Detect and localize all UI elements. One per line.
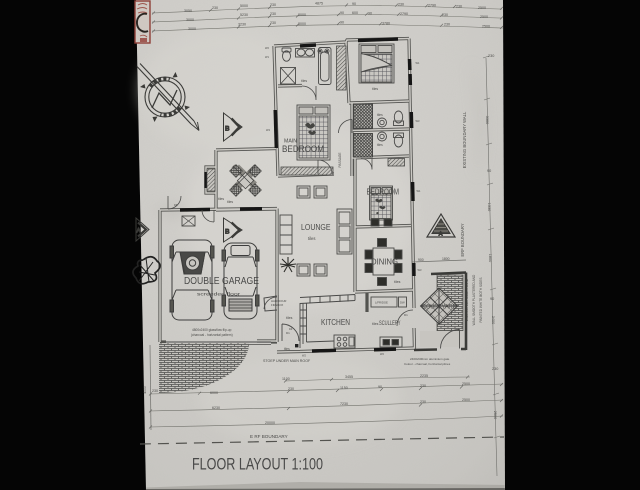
svg-text:90: 90 bbox=[340, 11, 344, 15]
svg-text:230: 230 bbox=[152, 389, 158, 393]
svg-text:FLOOR LAYOUT 1:100: FLOOR LAYOUT 1:100 bbox=[192, 456, 323, 474]
svg-text:20000: 20000 bbox=[265, 421, 275, 425]
svg-text:W3: W3 bbox=[416, 119, 420, 123]
svg-text:3230: 3230 bbox=[238, 23, 246, 27]
svg-text:90: 90 bbox=[487, 169, 491, 173]
svg-text:tiles: tiles bbox=[286, 316, 293, 320]
svg-text:tiles: tiles bbox=[372, 87, 378, 91]
svg-text:2500: 2500 bbox=[493, 411, 497, 419]
svg-text:D6: D6 bbox=[174, 203, 178, 207]
svg-text:COURTYARD: COURTYARD bbox=[422, 304, 457, 311]
svg-text:tiles: tiles bbox=[227, 200, 233, 204]
svg-text:3780: 3780 bbox=[382, 22, 390, 26]
svg-text:230: 230 bbox=[420, 400, 426, 404]
svg-text:230: 230 bbox=[270, 21, 276, 25]
svg-text:D1: D1 bbox=[404, 313, 408, 317]
svg-text:230: 230 bbox=[288, 387, 294, 391]
svg-text:tiles: tiles bbox=[377, 113, 383, 117]
svg-text:2500: 2500 bbox=[462, 398, 470, 402]
svg-text:2400x600mm aluminium gate: 2400x600mm aluminium gate bbox=[410, 357, 450, 361]
svg-text:D1: D1 bbox=[286, 331, 290, 335]
svg-text:230: 230 bbox=[270, 3, 276, 7]
svg-text:1330: 1330 bbox=[487, 203, 491, 211]
svg-text:2500: 2500 bbox=[462, 382, 470, 386]
svg-text:900: 900 bbox=[418, 258, 424, 262]
svg-text:PAINTED WHITE BOTH SIDES: PAINTED WHITE BOTH SIDES bbox=[479, 278, 483, 323]
svg-text:3000: 3000 bbox=[188, 27, 196, 31]
svg-text:600: 600 bbox=[352, 11, 358, 15]
svg-text:KITCHEN: KITCHEN bbox=[321, 318, 350, 327]
svg-text:B: B bbox=[225, 126, 230, 133]
svg-text:1800: 1800 bbox=[442, 257, 450, 261]
svg-text:W4: W4 bbox=[266, 128, 270, 132]
svg-text:DOUBLE GARAGE: DOUBLE GARAGE bbox=[184, 275, 259, 287]
svg-text:3000: 3000 bbox=[298, 22, 306, 26]
svg-text:tiles: tiles bbox=[218, 197, 224, 201]
svg-text:6230: 6230 bbox=[212, 406, 220, 410]
svg-text:2500: 2500 bbox=[480, 15, 488, 19]
svg-text:FIREBOX: FIREBOX bbox=[271, 303, 283, 307]
svg-text:1800: 1800 bbox=[488, 254, 492, 262]
svg-text:A: A bbox=[137, 229, 141, 235]
svg-text:90: 90 bbox=[340, 21, 344, 25]
svg-text:W3: W3 bbox=[418, 268, 422, 272]
svg-text:230: 230 bbox=[420, 384, 426, 388]
svg-text:230: 230 bbox=[492, 367, 498, 371]
svg-text:230: 230 bbox=[398, 3, 404, 7]
svg-text:W2: W2 bbox=[265, 46, 269, 50]
svg-text:tiles: tiles bbox=[284, 347, 290, 351]
svg-text:W2: W2 bbox=[302, 354, 306, 358]
svg-text:DW: DW bbox=[400, 301, 405, 305]
svg-text:230: 230 bbox=[456, 5, 462, 9]
svg-text:2500: 2500 bbox=[482, 25, 490, 29]
svg-text:EXISTING BOUNDARY WALL: EXISTING BOUNDARY WALL bbox=[462, 111, 467, 168]
svg-text:5000: 5000 bbox=[240, 4, 248, 8]
svg-text:3000: 3000 bbox=[186, 18, 194, 22]
svg-text:4875: 4875 bbox=[315, 2, 323, 6]
svg-text:W2: W2 bbox=[380, 352, 384, 356]
svg-text:90: 90 bbox=[378, 385, 382, 389]
svg-text:W1: W1 bbox=[417, 189, 421, 193]
svg-text:90: 90 bbox=[368, 12, 372, 16]
svg-text:230: 230 bbox=[488, 54, 494, 58]
svg-text:230: 230 bbox=[212, 6, 218, 10]
svg-text:3455: 3455 bbox=[345, 375, 353, 379]
svg-text:1150: 1150 bbox=[340, 386, 348, 390]
svg-text:DINING: DINING bbox=[371, 258, 398, 267]
svg-text:PASSAGE: PASSAGE bbox=[338, 153, 342, 168]
svg-text:W1: W1 bbox=[265, 55, 269, 59]
svg-text:W1: W1 bbox=[416, 61, 420, 65]
svg-text:3400: 3400 bbox=[491, 316, 495, 324]
svg-text:3000: 3000 bbox=[298, 13, 306, 17]
svg-text:4000: 4000 bbox=[143, 386, 147, 394]
svg-text:90: 90 bbox=[352, 2, 356, 6]
svg-text:3300: 3300 bbox=[485, 116, 489, 124]
svg-text:6000: 6000 bbox=[210, 391, 218, 395]
svg-text:1100: 1100 bbox=[282, 377, 290, 381]
svg-text:230: 230 bbox=[442, 13, 448, 17]
svg-text:LOUNGE: LOUNGE bbox=[301, 223, 331, 232]
svg-text:A: A bbox=[439, 232, 443, 238]
svg-text:230: 230 bbox=[444, 23, 450, 27]
svg-text:Colour - charcoal, horizontal: Colour - charcoal, horizontal pilnes bbox=[404, 362, 451, 366]
svg-text:(charcoal - horizontal pattern: (charcoal - horizontal pattern) bbox=[191, 333, 233, 337]
svg-text:ERF BOUNDARY: ERF BOUNDARY bbox=[460, 223, 465, 256]
svg-text:tiles: tiles bbox=[377, 143, 383, 147]
svg-text:tiles: tiles bbox=[394, 280, 401, 284]
svg-text:230: 230 bbox=[270, 12, 276, 16]
svg-text:L/FRIDGE: L/FRIDGE bbox=[375, 301, 388, 305]
svg-text:tiles: tiles bbox=[372, 322, 379, 326]
svg-text:BEDROOM: BEDROOM bbox=[367, 188, 400, 197]
svg-text:3050: 3050 bbox=[184, 9, 192, 13]
svg-text:tiles: tiles bbox=[301, 79, 307, 83]
svg-text:4800x2400 glassflow flip-up: 4800x2400 glassflow flip-up bbox=[192, 328, 232, 332]
svg-text:BEDROOM: BEDROOM bbox=[282, 144, 324, 154]
svg-text:STOEP UNDER MAIN ROOF: STOEP UNDER MAIN ROOF bbox=[263, 359, 311, 363]
svg-text:2500: 2500 bbox=[478, 6, 486, 10]
svg-text:5230: 5230 bbox=[240, 13, 248, 17]
svg-text:tiles: tiles bbox=[308, 236, 315, 241]
svg-text:90: 90 bbox=[490, 297, 494, 301]
svg-text:2790: 2790 bbox=[400, 12, 408, 16]
svg-text:D4: D4 bbox=[289, 327, 293, 331]
svg-text:B: B bbox=[225, 229, 230, 236]
svg-text:E RF BOUNDARY: E RF BOUNDARY bbox=[250, 434, 288, 439]
svg-text:7230: 7230 bbox=[340, 402, 348, 406]
svg-text:2235: 2235 bbox=[420, 374, 428, 378]
svg-text:WALL SMOOTH PLASTERED AND: WALL SMOOTH PLASTERED AND bbox=[472, 274, 476, 325]
svg-text:2790: 2790 bbox=[428, 4, 436, 8]
